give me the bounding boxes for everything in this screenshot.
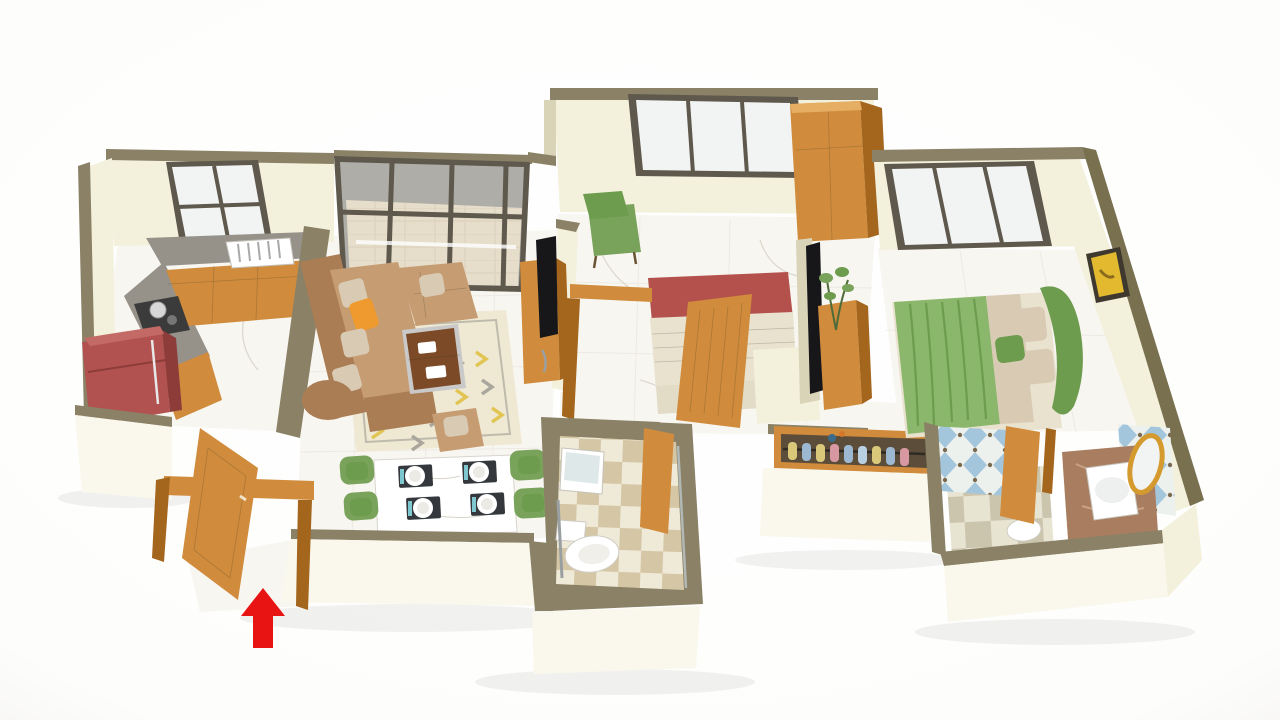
bathroom-door (640, 428, 674, 534)
counter-cabinet-front (166, 260, 310, 326)
master-window (884, 161, 1052, 250)
kitchen-window (166, 160, 272, 244)
bath-door-1 (1000, 426, 1040, 524)
green-blanket (894, 296, 1000, 434)
bedroom1-left-jog (544, 100, 556, 164)
green-throw-pillow (994, 334, 1025, 364)
floor-plan-canvas (0, 0, 1280, 720)
open-door-panel (676, 294, 752, 428)
dining-front-wall (281, 539, 546, 606)
sink-dish-rack (226, 238, 294, 268)
wardrobe (790, 101, 888, 242)
double-bed-green (892, 286, 1083, 438)
hallway-front-wall (760, 468, 934, 542)
sideboard (818, 300, 862, 410)
decor-figure (828, 434, 836, 442)
room-common-bathroom (529, 417, 703, 674)
bean-bag (302, 380, 354, 420)
bathroom-front-face (532, 606, 700, 674)
bedroom1-window (628, 94, 804, 178)
coffee-table (402, 324, 466, 394)
magazine (418, 341, 437, 354)
decor-figure (839, 431, 845, 437)
room-hallway (760, 426, 934, 542)
washbasin-mirror (560, 448, 604, 494)
magazine (425, 365, 446, 379)
floor-plan-render (0, 0, 1280, 720)
